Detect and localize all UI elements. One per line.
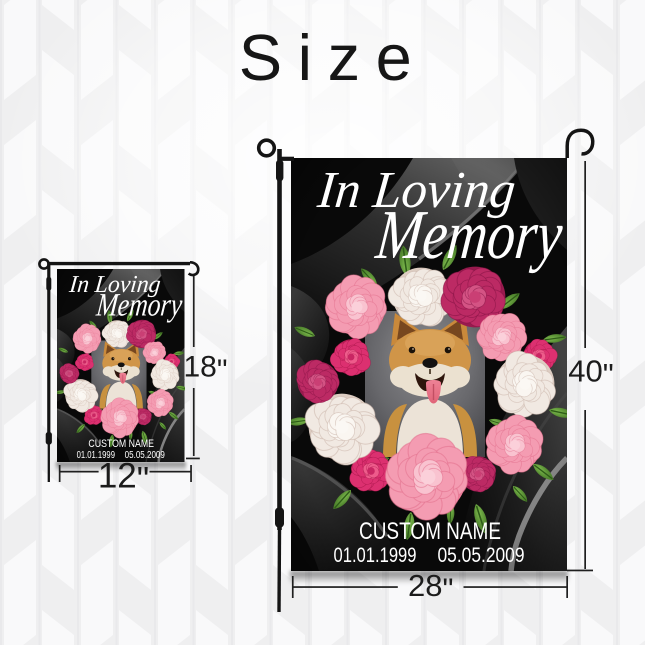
svg-text:28": 28": [408, 568, 454, 607]
svg-text:12": 12": [98, 457, 149, 500]
svg-text:18": 18": [183, 351, 227, 388]
svg-text:40": 40": [568, 354, 614, 393]
